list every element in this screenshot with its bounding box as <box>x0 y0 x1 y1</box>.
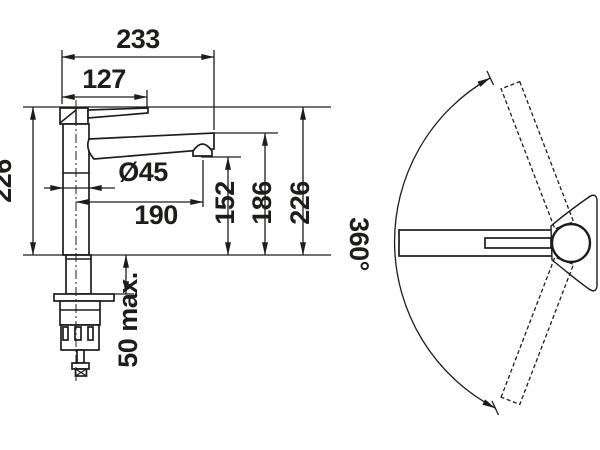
dimensions: 233 127 226 Ø45 190 152 186 226 50 max. <box>0 24 315 368</box>
dim-label-height-left: 226 <box>0 159 17 203</box>
swivel-arc-end-tick-top <box>487 71 494 85</box>
faucet-top-view: 360° <box>344 71 597 415</box>
claw-slot-left <box>63 327 68 340</box>
dim-label-spout-reach: 190 <box>134 200 178 230</box>
mounting-shank <box>66 255 91 294</box>
top-view-lever <box>485 238 551 248</box>
lever-handle <box>88 108 148 118</box>
mounting-nut <box>60 301 100 325</box>
swivel-position-lower <box>501 257 573 404</box>
dim-label-deck-thickness: 50 max. <box>113 272 143 368</box>
base-flange <box>54 294 114 301</box>
faucet-dimension-drawing: 233 127 226 Ø45 190 152 186 226 50 max. <box>0 0 600 450</box>
dim-label-total-width: 233 <box>116 24 160 54</box>
swivel-range-label: 360° <box>344 217 374 271</box>
dim-label-body-diameter: Ø45 <box>118 157 168 187</box>
top-view-body-circle <box>552 224 590 262</box>
fixing-screw-head <box>72 363 89 369</box>
dim-label-lever-length: 127 <box>82 64 126 94</box>
dim-label-total-height: 226 <box>285 181 315 225</box>
dim-label-spout-top-height: 186 <box>247 181 277 225</box>
technical-drawing-canvas: 233 127 226 Ø45 190 152 186 226 50 max. <box>0 0 600 450</box>
mixer-head <box>60 108 88 124</box>
fixing-stud <box>77 350 84 363</box>
swivel-arc-end-tick-bottom <box>492 401 499 415</box>
claw-slot-right <box>88 327 93 340</box>
swivel-position-upper <box>501 82 573 229</box>
dim-label-outlet-height: 152 <box>210 181 240 225</box>
